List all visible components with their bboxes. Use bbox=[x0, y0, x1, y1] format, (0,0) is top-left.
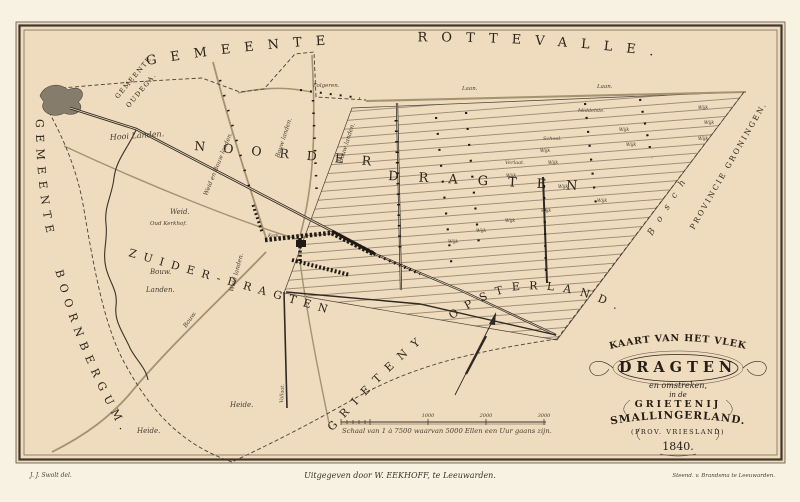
label-wijk: Wijk bbox=[540, 148, 550, 154]
label-landen: Landen. bbox=[145, 286, 175, 294]
label-wijk: Wijk bbox=[548, 160, 558, 166]
label-laan-2: Laan. bbox=[596, 84, 613, 90]
scale-tick-2000: 2000 bbox=[479, 413, 494, 419]
imprint-publisher: Uitgegeven door W. EEKHOFF, te Leeuwarde… bbox=[304, 471, 496, 480]
label-middelste: Middelste. bbox=[577, 108, 605, 114]
label-wijk: Wijk bbox=[704, 120, 714, 126]
cartouche-year: 1840. bbox=[662, 440, 694, 453]
cartouche-line2: en omstreken, bbox=[649, 381, 707, 390]
label-oud-kerkhof: Oud Kerkhof. bbox=[150, 221, 187, 227]
label-bouw: Bouw. bbox=[149, 268, 171, 276]
label-weid: Weid. bbox=[170, 208, 190, 216]
label-wijk: Wijk bbox=[558, 184, 568, 190]
cartouche-place: DRAGTEN bbox=[619, 359, 737, 376]
label-vallaat: Vallaat. bbox=[279, 384, 286, 404]
scale-tick-1000: 1000 bbox=[422, 413, 436, 419]
church-block bbox=[296, 240, 306, 247]
label-kerk: Kerk. bbox=[267, 233, 281, 239]
label-heide-1: Heide. bbox=[136, 427, 160, 435]
cartouche-line6: (PROV. VRIESLAND) bbox=[631, 428, 725, 436]
scale-tick-3000: 3000 bbox=[538, 413, 552, 419]
cartouche-line4: GRIETENIJ bbox=[635, 399, 722, 410]
historic-map-canvas: GEMEENTE ROTTEVALLE. GEMEENTE BOORNBERGU… bbox=[0, 0, 800, 502]
label-wijk: Wijk bbox=[619, 127, 629, 133]
map-sheet: GEMEENTE ROTTEVALLE. GEMEENTE BOORNBERGU… bbox=[0, 0, 800, 502]
label-wijk: Wijk bbox=[597, 198, 607, 204]
scale-caption: Schaal van 1 à 7500 waarvan 5000 Ellen e… bbox=[342, 427, 552, 435]
label-folgeren: Folgeren. bbox=[312, 83, 340, 89]
label-laan-1: Laan. bbox=[461, 86, 478, 92]
label-wijk: Wijk bbox=[506, 173, 516, 179]
label-wijk: Wijk bbox=[698, 105, 708, 111]
imprint-lithographer: Steend. v. Brandsma te Leeuwarden. bbox=[672, 473, 775, 479]
label-verlaat: Verlaat. bbox=[505, 160, 525, 166]
label-wijk: Wijk bbox=[448, 239, 458, 245]
label-wijk: Wijk bbox=[476, 228, 486, 234]
label-school: School. bbox=[543, 136, 562, 142]
label-heide-2: Heide. bbox=[229, 401, 253, 409]
label-wijk: Wijk bbox=[541, 208, 551, 214]
cartouche-line3: in de bbox=[669, 391, 687, 399]
label-wijk: Wijk bbox=[698, 136, 708, 142]
imprint-drawn-by: J. J. Swolt del. bbox=[28, 472, 72, 479]
label-wijk: Wijk bbox=[626, 142, 636, 148]
label-wijk: Wijk bbox=[505, 218, 515, 224]
